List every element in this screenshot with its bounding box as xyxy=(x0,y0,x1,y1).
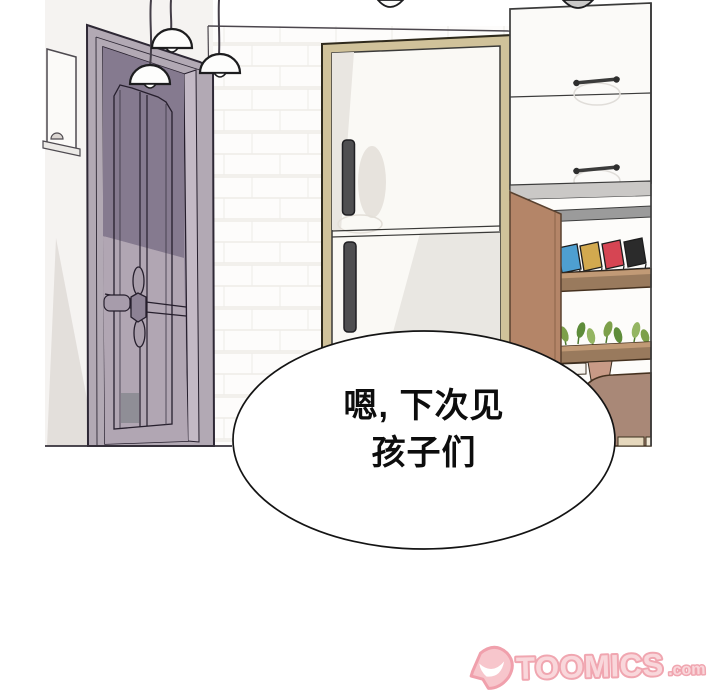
fridge-handle-top xyxy=(343,140,355,215)
watermark-suffix-text: .com xyxy=(668,661,706,679)
speech-bubble-text: 嗯, 下次见 孩子们 xyxy=(274,383,574,477)
toomics-logo-mark xyxy=(467,645,516,691)
door-handle xyxy=(104,295,130,311)
book-yellow xyxy=(580,242,602,271)
fridge-handle-bottom xyxy=(344,242,356,332)
speech-line-2: 孩子们 xyxy=(274,430,574,477)
watermark-brand-text: TOOMICS xyxy=(516,647,664,686)
speech-line-1: 嗯, 下次见 xyxy=(274,383,574,430)
chair-foot xyxy=(618,437,644,446)
book-black xyxy=(624,238,646,267)
lamp-dome-partial xyxy=(378,0,403,7)
door-shadow xyxy=(121,393,139,423)
toomics-watermark: TOOMICS .com xyxy=(463,631,720,700)
comic-panel-illustration xyxy=(0,0,720,700)
book-red xyxy=(602,240,624,269)
upper-cabinet-drawers xyxy=(510,3,651,200)
wall-frame-shelf xyxy=(43,49,80,156)
